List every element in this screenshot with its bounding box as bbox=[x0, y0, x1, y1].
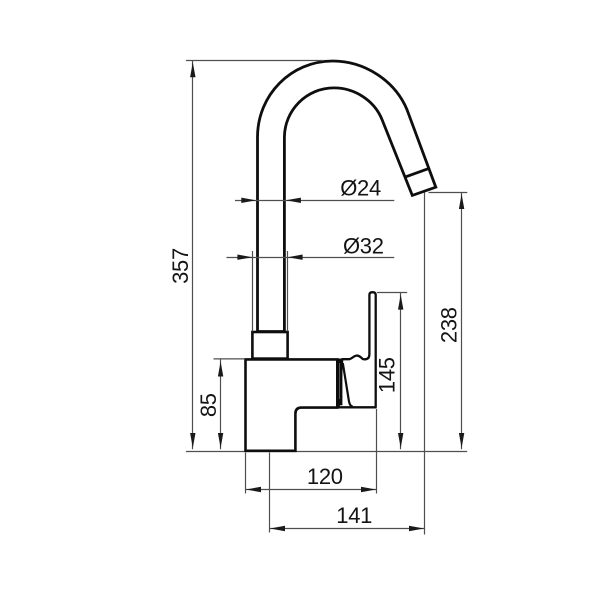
svg-text:Ø32: Ø32 bbox=[343, 234, 384, 259]
svg-text:Ø24: Ø24 bbox=[340, 176, 381, 201]
svg-text:357: 357 bbox=[168, 248, 193, 284]
svg-text:145: 145 bbox=[374, 357, 399, 393]
svg-text:141: 141 bbox=[336, 503, 372, 528]
svg-text:238: 238 bbox=[436, 307, 461, 343]
svg-text:85: 85 bbox=[196, 393, 221, 417]
svg-text:120: 120 bbox=[307, 464, 343, 489]
